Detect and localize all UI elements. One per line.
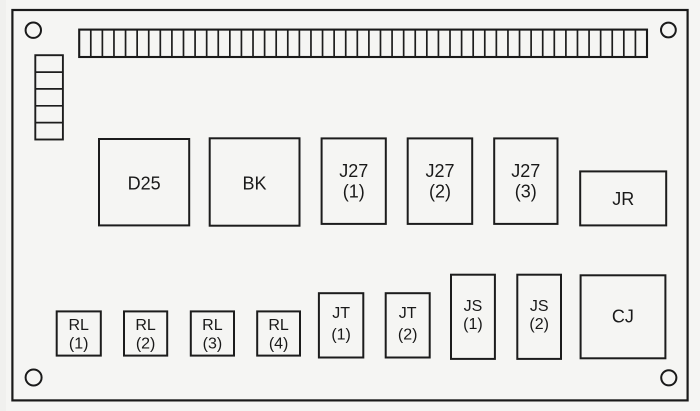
svg-text:JR: JR [612,189,634,209]
svg-text:J27: J27 [425,161,454,181]
svg-text:CJ: CJ [612,307,634,327]
svg-text:(4): (4) [269,336,289,353]
svg-text:RL: RL [202,317,223,334]
svg-text:RL: RL [268,317,289,334]
svg-text:J27: J27 [339,161,368,181]
svg-text:JS: JS [530,298,549,315]
svg-text:D25: D25 [128,173,161,193]
svg-text:(1): (1) [331,327,351,344]
svg-text:RL: RL [135,317,156,334]
svg-text:JT: JT [332,305,350,322]
svg-text:(2): (2) [429,182,451,202]
svg-text:JT: JT [399,305,417,322]
svg-text:(1): (1) [343,182,365,202]
svg-text:(1): (1) [69,336,89,353]
svg-text:(3): (3) [515,182,537,202]
svg-text:J27: J27 [511,161,540,181]
svg-text:RL: RL [68,317,89,334]
svg-text:(2): (2) [398,327,418,344]
svg-text:(1): (1) [463,316,483,333]
svg-text:(2): (2) [529,316,549,333]
svg-text:JS: JS [464,298,483,315]
svg-text:(2): (2) [136,336,156,353]
svg-text:BK: BK [242,173,266,193]
svg-text:(3): (3) [203,336,223,353]
